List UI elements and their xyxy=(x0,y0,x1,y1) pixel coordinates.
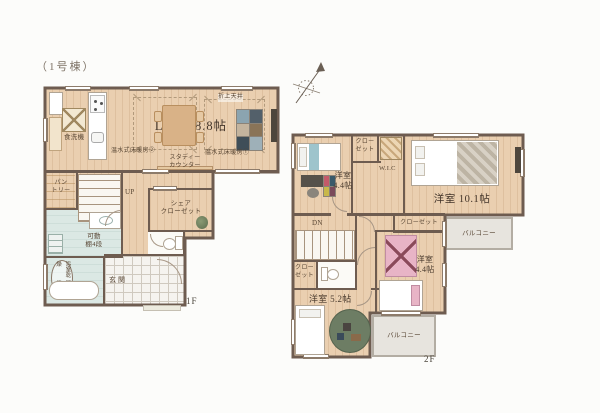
wall xyxy=(103,258,105,305)
pillow xyxy=(415,146,425,159)
pillow xyxy=(415,163,425,176)
wic-clothes xyxy=(380,137,402,160)
pillow xyxy=(299,147,307,167)
wall xyxy=(355,215,357,290)
window xyxy=(221,86,253,91)
toilet-bowl xyxy=(163,238,176,250)
round-rug xyxy=(329,309,371,353)
bed-blanket xyxy=(457,142,497,184)
closet-west-label: クロー ゼット xyxy=(294,265,315,281)
wall xyxy=(316,262,318,288)
chair xyxy=(154,111,162,122)
sliding-door xyxy=(381,311,421,316)
dishwasher-symbol xyxy=(62,108,86,132)
floor-heating-1-label: 温水式床暖房① xyxy=(205,150,249,158)
wall xyxy=(375,230,445,232)
pantry-label: パン トリー xyxy=(47,180,75,196)
plant-icon xyxy=(196,216,208,229)
wall xyxy=(403,135,405,215)
building-label: （1号棟） xyxy=(36,58,96,74)
wall xyxy=(375,230,377,313)
chair xyxy=(196,111,204,122)
pillow xyxy=(411,285,420,306)
toy xyxy=(351,334,361,341)
window xyxy=(129,86,159,91)
closet-north-label: クロー ゼット xyxy=(351,139,379,155)
toilet-tank xyxy=(175,236,183,250)
wall xyxy=(351,161,381,163)
window xyxy=(43,118,48,142)
floor-plan-2f: バルコニー バルコニー xyxy=(293,135,523,357)
chair xyxy=(196,132,204,143)
stove-burners xyxy=(94,100,97,103)
desk-chair xyxy=(307,188,319,198)
wall xyxy=(148,188,150,232)
room-nw-label: 洋室 4.4帖 xyxy=(327,171,359,192)
closet-center-label: クローゼット xyxy=(393,220,445,228)
bathtub xyxy=(49,281,99,300)
stairs-up-label: UP xyxy=(125,188,135,197)
entrance-porch xyxy=(143,305,181,311)
desk xyxy=(301,175,325,187)
entrance-label: 玄関 xyxy=(109,276,127,285)
room-se-label: 洋室 4.4帖 xyxy=(409,255,441,276)
wall xyxy=(121,172,123,258)
floor-heating-2-label: 温水式床暖房② xyxy=(111,148,155,156)
toy xyxy=(337,333,344,340)
window xyxy=(65,86,91,91)
living-rug xyxy=(236,109,263,151)
pillow xyxy=(299,309,321,318)
floorplan-canvas: （1号棟） xyxy=(0,0,600,413)
dining-table xyxy=(162,105,196,146)
study-counter-label: スタディー カウンター xyxy=(163,155,207,171)
window xyxy=(291,143,296,169)
sliding-door xyxy=(153,186,177,191)
wall xyxy=(45,256,122,258)
window xyxy=(442,263,447,287)
toy xyxy=(343,323,351,331)
wic-label: W.I.C xyxy=(379,165,396,173)
wall xyxy=(293,288,357,290)
floor-plan-1f: 食洗機 LDK 18.8帖 折上天井 xyxy=(45,88,278,305)
room-sw-label: 洋室 5.2帖 xyxy=(309,294,352,306)
tv-board xyxy=(515,147,521,173)
movable-shelf xyxy=(48,234,63,254)
toilet-bowl xyxy=(327,269,339,280)
refrigerator xyxy=(49,92,63,115)
window xyxy=(43,264,48,290)
north-arrow-icon xyxy=(290,60,330,110)
room-east-label: 洋室 10.1帖 xyxy=(423,193,501,207)
stairs-2f xyxy=(295,230,355,260)
coffered-ceiling-label: 折上天井 xyxy=(218,94,243,102)
kitchen-cabinet xyxy=(49,117,62,151)
wall xyxy=(183,232,185,256)
stairs-down-label: DN xyxy=(312,219,323,228)
floor-label-1f: 1F xyxy=(186,296,198,306)
share-closet-label: シェア クローゼット xyxy=(152,200,210,217)
window xyxy=(433,133,479,138)
chair xyxy=(154,132,162,143)
kitchen-sink xyxy=(91,132,104,143)
stove xyxy=(90,95,105,113)
wall xyxy=(293,260,357,262)
dishwasher-label: 食洗機 xyxy=(64,134,84,142)
window xyxy=(305,133,333,138)
movable-shelf-label: 可動 棚4段 xyxy=(77,233,111,250)
bed-throw xyxy=(309,144,319,170)
wall xyxy=(293,213,331,216)
floor-label-2f: 2F xyxy=(424,354,436,364)
wall xyxy=(148,230,213,232)
wall xyxy=(45,170,142,173)
tv-board xyxy=(271,109,277,142)
window xyxy=(215,169,260,174)
